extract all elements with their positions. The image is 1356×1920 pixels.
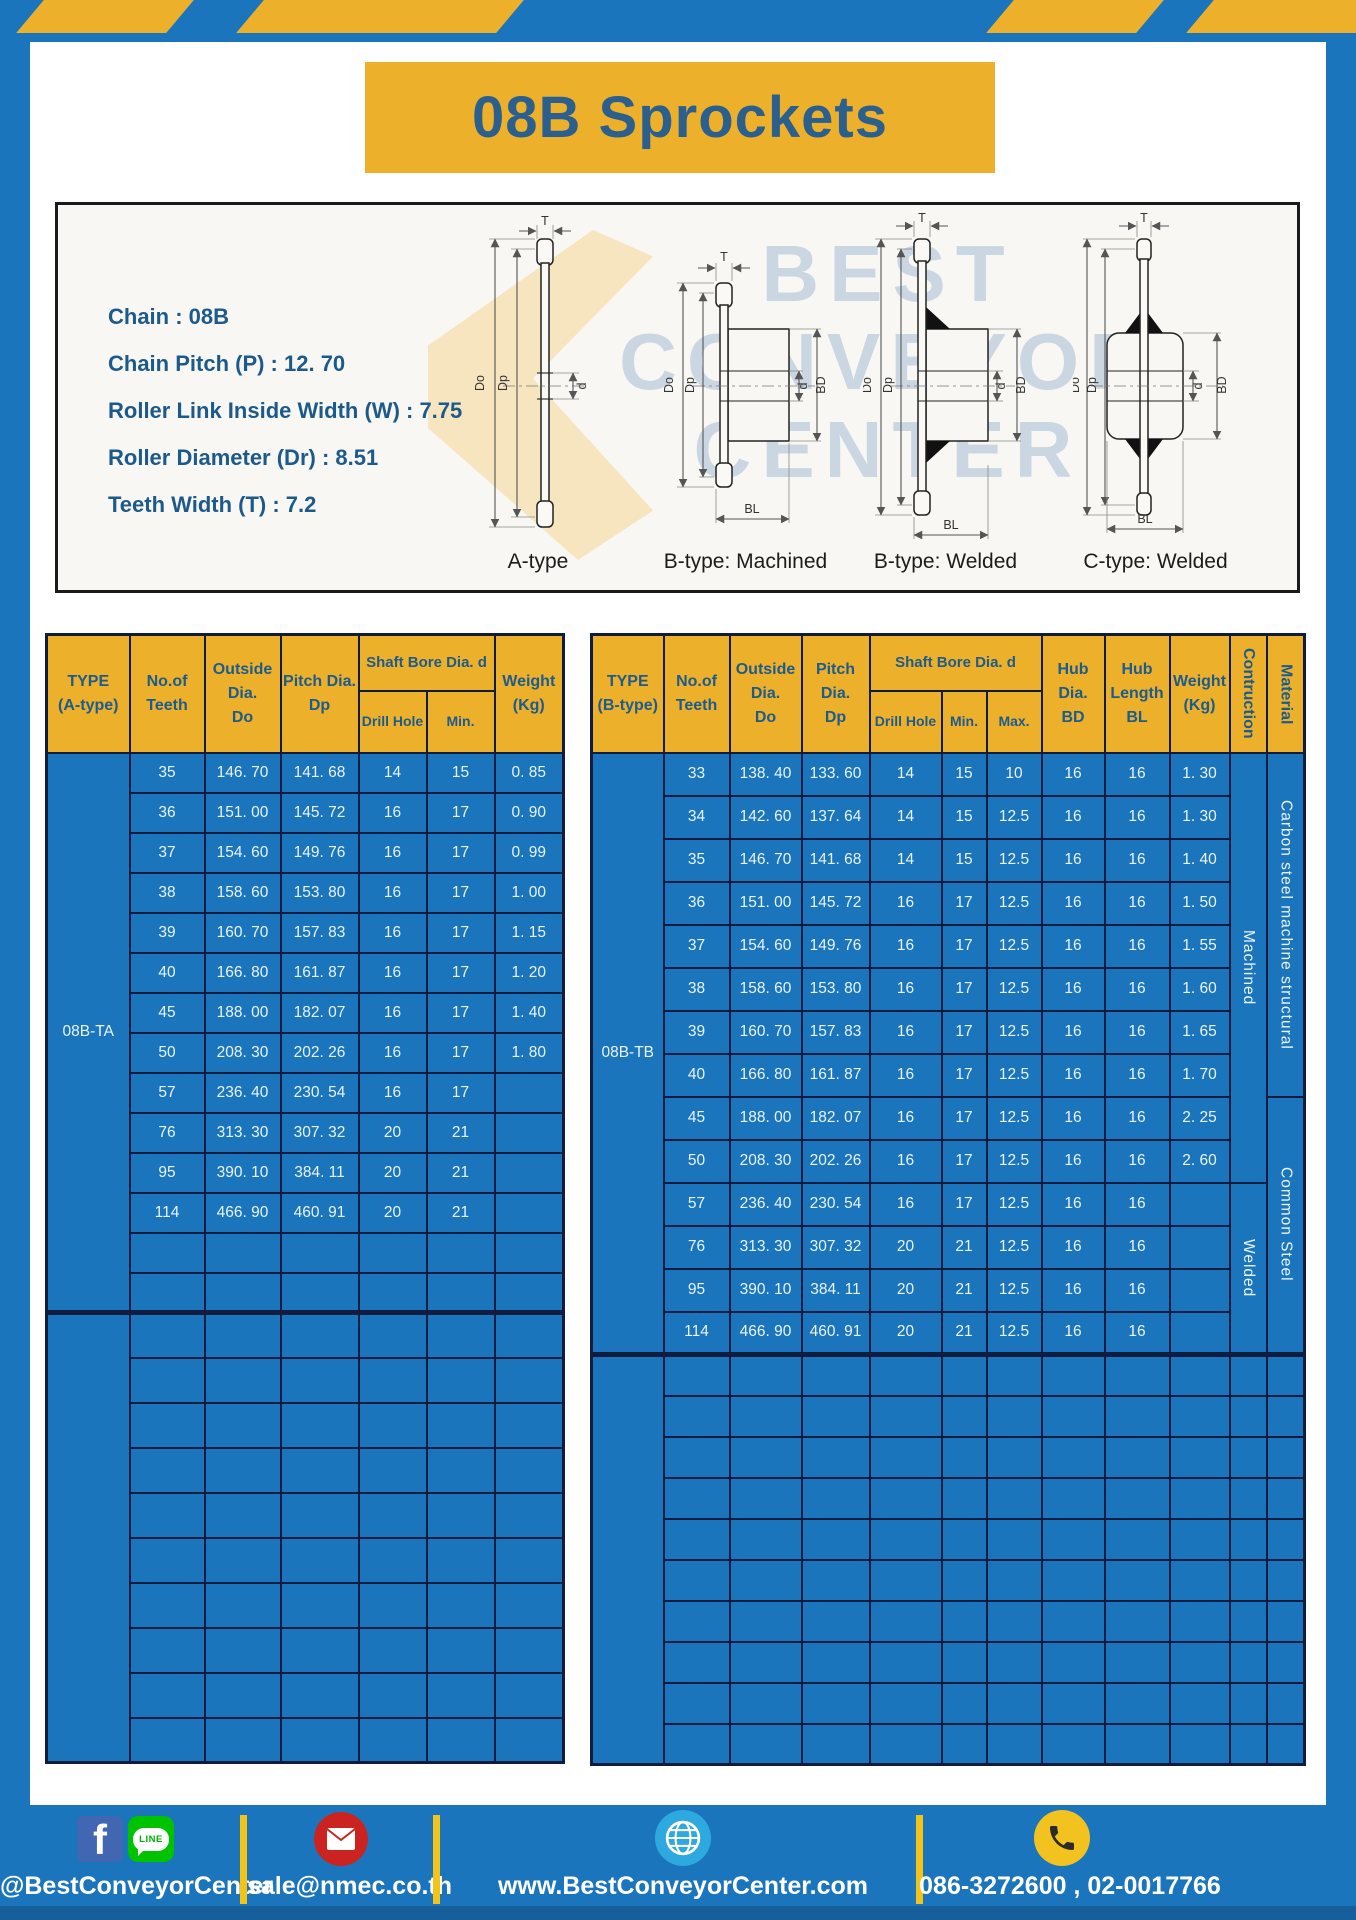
cell bbox=[1170, 1478, 1230, 1519]
cell: 16 bbox=[870, 1054, 942, 1097]
cell: 16 bbox=[1042, 925, 1105, 968]
cell: 307. 32 bbox=[802, 1226, 870, 1269]
cell bbox=[1105, 1396, 1170, 1437]
table-row bbox=[592, 1683, 1305, 1724]
cell bbox=[1230, 1601, 1267, 1642]
col-header-outside-dia: Outside Dia. Do bbox=[730, 635, 802, 753]
cell bbox=[987, 1519, 1042, 1560]
facebook-icon: f bbox=[77, 1816, 123, 1862]
cell: 202. 26 bbox=[281, 1033, 359, 1073]
cell bbox=[1042, 1355, 1105, 1396]
dim-label: Dp bbox=[496, 375, 510, 391]
cell: 145. 72 bbox=[281, 793, 359, 833]
table-a-empty-block bbox=[47, 1313, 564, 1763]
cell bbox=[130, 1718, 205, 1763]
cell: 57 bbox=[664, 1183, 730, 1226]
cell bbox=[802, 1601, 870, 1642]
cell bbox=[802, 1478, 870, 1519]
cell: 10 bbox=[987, 753, 1042, 796]
cell: 20 bbox=[359, 1113, 427, 1153]
cell: 20 bbox=[870, 1269, 942, 1312]
table-a-type: TYPE (A-type) No.of Teeth Outside Dia. D… bbox=[45, 633, 565, 1764]
table-row bbox=[592, 1519, 1305, 1560]
cell bbox=[802, 1355, 870, 1396]
cell: 16 bbox=[1105, 1312, 1170, 1355]
table-row: 45188. 00182. 07161712.516162. 25Common … bbox=[592, 1097, 1305, 1140]
cell bbox=[427, 1358, 495, 1403]
cell: 182. 07 bbox=[281, 993, 359, 1033]
table-row: 114466. 90460. 91202112.51616 bbox=[592, 1312, 1305, 1355]
cell: 146. 70 bbox=[205, 753, 281, 793]
chain-specs: Chain : 08B Chain Pitch (P) : 12. 70 Rol… bbox=[108, 293, 462, 528]
cell bbox=[427, 1493, 495, 1538]
cell: 95 bbox=[130, 1153, 205, 1193]
cell: 16 bbox=[870, 968, 942, 1011]
cell bbox=[281, 1403, 359, 1448]
cell: 16 bbox=[870, 925, 942, 968]
cell bbox=[942, 1478, 987, 1519]
dim-label: Do bbox=[863, 377, 874, 393]
cell: 17 bbox=[942, 925, 987, 968]
cell: 307. 32 bbox=[281, 1113, 359, 1153]
cell: 1. 20 bbox=[495, 953, 564, 993]
cell: 17 bbox=[942, 968, 987, 1011]
cell bbox=[1105, 1683, 1170, 1724]
a-type-diagram: T Do Dp d bbox=[473, 213, 603, 548]
cell bbox=[730, 1437, 802, 1478]
cell bbox=[1170, 1519, 1230, 1560]
cell bbox=[205, 1448, 281, 1493]
cell: 16 bbox=[359, 873, 427, 913]
col-header-teeth: No.of Teeth bbox=[664, 635, 730, 753]
cell bbox=[130, 1583, 205, 1628]
title-banner: 08B Sprockets bbox=[365, 62, 995, 173]
table-b-type-label: 08B-TB bbox=[592, 753, 664, 1355]
table-row: 38158. 60153. 80161712.516161. 60 bbox=[592, 968, 1305, 1011]
construction-label: Machined bbox=[1230, 753, 1267, 1183]
cell: 208. 30 bbox=[205, 1033, 281, 1073]
cell: 37 bbox=[664, 925, 730, 968]
cell bbox=[664, 1519, 730, 1560]
cell bbox=[205, 1718, 281, 1763]
cell bbox=[1042, 1560, 1105, 1601]
cell: 0. 90 bbox=[495, 793, 564, 833]
cell: 12.5 bbox=[987, 839, 1042, 882]
cell: 34 bbox=[664, 796, 730, 839]
cell: 1. 00 bbox=[495, 873, 564, 913]
cell bbox=[730, 1642, 802, 1683]
cell: 16 bbox=[1042, 753, 1105, 796]
cell: 160. 70 bbox=[730, 1011, 802, 1054]
line-icon: LINE bbox=[128, 1816, 174, 1862]
cell bbox=[130, 1448, 205, 1493]
cell: 17 bbox=[427, 793, 495, 833]
table-row: 36151. 00145. 72161712.516161. 50 bbox=[592, 882, 1305, 925]
table-row: 50208. 30202. 26161712.516162. 60 bbox=[592, 1140, 1305, 1183]
cell bbox=[664, 1683, 730, 1724]
cell: 17 bbox=[942, 1140, 987, 1183]
cell bbox=[1230, 1560, 1267, 1601]
cell: 12.5 bbox=[987, 796, 1042, 839]
cell bbox=[359, 1673, 427, 1718]
cell: 16 bbox=[1042, 796, 1105, 839]
table-row bbox=[592, 1355, 1305, 1396]
cell bbox=[1105, 1478, 1170, 1519]
col-header-hub-dia: Hub Dia. BD bbox=[1042, 635, 1105, 753]
cell: 21 bbox=[427, 1153, 495, 1193]
cell bbox=[205, 1538, 281, 1583]
dim-label: Do bbox=[1073, 377, 1082, 393]
cell: 17 bbox=[427, 993, 495, 1033]
cell: 313. 30 bbox=[205, 1113, 281, 1153]
cell bbox=[802, 1642, 870, 1683]
cell: 16 bbox=[1105, 1011, 1170, 1054]
cell bbox=[359, 1273, 427, 1313]
col-header-construction: Contruction bbox=[1230, 635, 1267, 753]
cell: 154. 60 bbox=[730, 925, 802, 968]
email-address: sale@nmec.co.th bbox=[247, 1872, 435, 1901]
cell bbox=[427, 1233, 495, 1273]
cell bbox=[359, 1628, 427, 1673]
col-header-type: TYPE (A-type) bbox=[47, 635, 130, 753]
cell: 149. 76 bbox=[281, 833, 359, 873]
cell bbox=[495, 1113, 564, 1153]
cell: 202. 26 bbox=[802, 1140, 870, 1183]
cell bbox=[427, 1313, 495, 1358]
cell: 20 bbox=[359, 1193, 427, 1233]
cell: 16 bbox=[1105, 968, 1170, 1011]
cell: 76 bbox=[664, 1226, 730, 1269]
cell bbox=[730, 1683, 802, 1724]
cell: 1. 15 bbox=[495, 913, 564, 953]
cell: 20 bbox=[870, 1312, 942, 1355]
cell bbox=[205, 1493, 281, 1538]
cell: 17 bbox=[942, 1183, 987, 1226]
table-row bbox=[592, 1601, 1305, 1642]
diagram-caption-a-type: A-type bbox=[463, 550, 613, 574]
col-header-pitch-dia: Pitch Dia. Dp bbox=[281, 635, 359, 753]
cell: 17 bbox=[942, 1054, 987, 1097]
cell bbox=[1230, 1519, 1267, 1560]
cell bbox=[664, 1724, 730, 1765]
page-title: 08B Sprockets bbox=[472, 84, 888, 151]
table-row bbox=[47, 1313, 564, 1358]
bottom-shadow-strip bbox=[0, 1906, 1356, 1920]
cell bbox=[130, 1493, 205, 1538]
cell: 14 bbox=[870, 753, 942, 796]
cell bbox=[1267, 1519, 1305, 1560]
cell: 16 bbox=[1042, 1097, 1105, 1140]
cell: 160. 70 bbox=[205, 913, 281, 953]
cell: 466. 90 bbox=[205, 1193, 281, 1233]
cell: 37 bbox=[130, 833, 205, 873]
cell bbox=[1267, 1560, 1305, 1601]
cell bbox=[1042, 1601, 1105, 1642]
dim-label: Dp bbox=[1085, 377, 1099, 393]
col-header-min: Min. bbox=[942, 691, 987, 753]
material-label: Common Steel bbox=[1267, 1097, 1305, 1355]
dim-label: d bbox=[575, 382, 589, 389]
cell bbox=[870, 1601, 942, 1642]
cell: 1. 60 bbox=[1170, 968, 1230, 1011]
cell: 21 bbox=[427, 1193, 495, 1233]
cell: 16 bbox=[1105, 1183, 1170, 1226]
cell bbox=[495, 1313, 564, 1358]
cell bbox=[1170, 1724, 1230, 1765]
cell: 151. 00 bbox=[730, 882, 802, 925]
c-type-welded-diagram: T Do Dp d BD BL bbox=[1073, 213, 1238, 548]
cell: 158. 60 bbox=[205, 873, 281, 913]
cell: 21 bbox=[427, 1113, 495, 1153]
cell: 16 bbox=[359, 1073, 427, 1113]
table-b-empty-block bbox=[592, 1355, 1305, 1765]
cell bbox=[1170, 1312, 1230, 1355]
cell: 466. 90 bbox=[730, 1312, 802, 1355]
cell: 35 bbox=[664, 839, 730, 882]
col-header-shaft-bore: Shaft Bore Dia. d bbox=[870, 635, 1042, 691]
cell: 12.5 bbox=[987, 1183, 1042, 1226]
table-b-type-spacer bbox=[592, 1355, 664, 1765]
cell: 35 bbox=[130, 753, 205, 793]
table-row bbox=[592, 1560, 1305, 1601]
cell bbox=[987, 1724, 1042, 1765]
table-a-header: TYPE (A-type) No.of Teeth Outside Dia. D… bbox=[47, 635, 564, 753]
construction-label: Welded bbox=[1230, 1183, 1267, 1355]
cell bbox=[1230, 1683, 1267, 1724]
cell bbox=[942, 1437, 987, 1478]
diagram-panel: BEST CONVEYOR CENTER Chain : 08B Chain P… bbox=[55, 202, 1300, 593]
cell: 166. 80 bbox=[730, 1054, 802, 1097]
diagram-caption-b-machined: B-type: Machined bbox=[643, 550, 848, 574]
cell: 166. 80 bbox=[205, 953, 281, 993]
cell bbox=[495, 1628, 564, 1673]
table-row: 95390. 10384. 11202112.51616 bbox=[592, 1269, 1305, 1312]
cell: 16 bbox=[359, 1033, 427, 1073]
cell: 20 bbox=[870, 1226, 942, 1269]
cell: 16 bbox=[1042, 1312, 1105, 1355]
cell: 16 bbox=[1105, 1097, 1170, 1140]
cell bbox=[870, 1478, 942, 1519]
table-b-header: TYPE (B-type) No.of Teeth Outside Dia. D… bbox=[592, 635, 1305, 753]
spec-line: Teeth Width (T) : 7.2 bbox=[108, 481, 462, 528]
cell: 384. 11 bbox=[802, 1269, 870, 1312]
cell bbox=[802, 1437, 870, 1478]
cell: 230. 54 bbox=[281, 1073, 359, 1113]
cell: 57 bbox=[130, 1073, 205, 1113]
cell bbox=[1267, 1478, 1305, 1519]
cell bbox=[1170, 1642, 1230, 1683]
cell bbox=[1042, 1683, 1105, 1724]
cell bbox=[987, 1560, 1042, 1601]
cell bbox=[1105, 1519, 1170, 1560]
cell bbox=[1230, 1355, 1267, 1396]
cell bbox=[281, 1628, 359, 1673]
cell: 141. 68 bbox=[802, 839, 870, 882]
cell: 21 bbox=[942, 1269, 987, 1312]
cell bbox=[942, 1642, 987, 1683]
cell: 1. 65 bbox=[1170, 1011, 1230, 1054]
website-url: www.BestConveyorCenter.com bbox=[437, 1872, 929, 1901]
dim-label: Dp bbox=[683, 377, 697, 393]
cell bbox=[1267, 1642, 1305, 1683]
cell: 17 bbox=[427, 1033, 495, 1073]
cell: 12.5 bbox=[987, 1011, 1042, 1054]
cell bbox=[870, 1396, 942, 1437]
cell bbox=[664, 1355, 730, 1396]
cell: 16 bbox=[1105, 882, 1170, 925]
cell: 12.5 bbox=[987, 1097, 1042, 1140]
cell bbox=[1170, 1396, 1230, 1437]
dim-label: BD bbox=[1014, 376, 1028, 393]
cell: 16 bbox=[1042, 968, 1105, 1011]
cell: 14 bbox=[870, 839, 942, 882]
dim-label: d bbox=[1191, 382, 1205, 389]
cell bbox=[281, 1673, 359, 1718]
b-type-welded-diagram: T Do Dp d BD BL bbox=[863, 213, 1028, 548]
cell bbox=[1170, 1269, 1230, 1312]
cell: 12.5 bbox=[987, 1269, 1042, 1312]
cell: 45 bbox=[130, 993, 205, 1033]
cell bbox=[281, 1273, 359, 1313]
cell: 1. 80 bbox=[495, 1033, 564, 1073]
cell bbox=[1170, 1683, 1230, 1724]
hazard-stripe bbox=[16, 0, 194, 33]
table-b-type: TYPE (B-type) No.of Teeth Outside Dia. D… bbox=[590, 633, 1306, 1766]
cell: 114 bbox=[130, 1193, 205, 1233]
table-row: 40166. 80161. 87161712.516161. 70 bbox=[592, 1054, 1305, 1097]
cell: 39 bbox=[664, 1011, 730, 1054]
cell bbox=[495, 1583, 564, 1628]
cell bbox=[130, 1538, 205, 1583]
cell: 313. 30 bbox=[730, 1226, 802, 1269]
cell bbox=[495, 1193, 564, 1233]
cell bbox=[870, 1437, 942, 1478]
cell: 16 bbox=[1042, 839, 1105, 882]
table-b-data-block: 08B-TB33138. 40133. 6014151016161. 30Mac… bbox=[592, 753, 1305, 1355]
col-header-outside-dia: Outside Dia. Do bbox=[205, 635, 281, 753]
cell bbox=[205, 1628, 281, 1673]
cell bbox=[942, 1396, 987, 1437]
cell: 36 bbox=[664, 882, 730, 925]
hazard-stripe bbox=[236, 0, 524, 33]
cell: 16 bbox=[1042, 1140, 1105, 1183]
footer-divider bbox=[240, 1815, 247, 1904]
phone-icon bbox=[1034, 1810, 1090, 1866]
cell bbox=[942, 1601, 987, 1642]
cell bbox=[495, 1448, 564, 1493]
cell: 14 bbox=[870, 796, 942, 839]
cell: 50 bbox=[664, 1140, 730, 1183]
cell: 390. 10 bbox=[205, 1153, 281, 1193]
cell: 1. 55 bbox=[1170, 925, 1230, 968]
cell bbox=[359, 1403, 427, 1448]
cell bbox=[870, 1355, 942, 1396]
social-handle: @BestConveyorCenter bbox=[0, 1872, 246, 1901]
cell: 45 bbox=[664, 1097, 730, 1140]
cell: 16 bbox=[1042, 1054, 1105, 1097]
line-bubble-glyph: LINE bbox=[133, 1828, 169, 1851]
cell: 14 bbox=[359, 753, 427, 793]
cell: 16 bbox=[359, 913, 427, 953]
cell bbox=[870, 1642, 942, 1683]
diagram-caption-c-welded: C-type: Welded bbox=[1053, 550, 1258, 574]
cell bbox=[987, 1478, 1042, 1519]
cell: 16 bbox=[1042, 1183, 1105, 1226]
cell bbox=[1042, 1724, 1105, 1765]
cell bbox=[802, 1396, 870, 1437]
dim-label: T bbox=[541, 214, 549, 228]
cell: 16 bbox=[359, 953, 427, 993]
cell bbox=[281, 1233, 359, 1273]
table-a-type-label: 08B-TA bbox=[47, 753, 130, 1313]
cell: 17 bbox=[427, 953, 495, 993]
cell: 114 bbox=[664, 1312, 730, 1355]
diagram-caption-b-welded: B-type: Welded bbox=[843, 550, 1048, 574]
cell bbox=[359, 1313, 427, 1358]
cell: 158. 60 bbox=[730, 968, 802, 1011]
cell bbox=[1267, 1601, 1305, 1642]
col-header-pitch-dia: Pitch Dia. Dp bbox=[802, 635, 870, 753]
cell bbox=[1105, 1724, 1170, 1765]
cell: 1. 40 bbox=[495, 993, 564, 1033]
hazard-stripe bbox=[1186, 0, 1356, 33]
cell: 17 bbox=[942, 882, 987, 925]
cell bbox=[730, 1396, 802, 1437]
cell bbox=[987, 1683, 1042, 1724]
cell bbox=[427, 1273, 495, 1313]
cell bbox=[1105, 1355, 1170, 1396]
cell: 12.5 bbox=[987, 1140, 1042, 1183]
cell: 188. 00 bbox=[730, 1097, 802, 1140]
cell bbox=[1230, 1642, 1267, 1683]
table-row bbox=[592, 1437, 1305, 1478]
cell bbox=[730, 1478, 802, 1519]
table-row: 76313. 30307. 32202112.51616 bbox=[592, 1226, 1305, 1269]
cell: 16 bbox=[1105, 1226, 1170, 1269]
table-row: 35146. 70141. 68141512.516161. 40 bbox=[592, 839, 1305, 882]
cell: 230. 54 bbox=[802, 1183, 870, 1226]
cell bbox=[870, 1519, 942, 1560]
table-a-data-block: 08B-TA35146. 70141. 6814150. 8536151. 00… bbox=[47, 753, 564, 1313]
cell bbox=[495, 1273, 564, 1313]
cell: 151. 00 bbox=[205, 793, 281, 833]
dim-label: T bbox=[918, 213, 926, 225]
cell: 16 bbox=[1105, 1054, 1170, 1097]
cell bbox=[495, 1233, 564, 1273]
col-header-min: Min. bbox=[427, 691, 495, 753]
spec-line: Roller Link Inside Width (W) : 7.75 bbox=[108, 387, 462, 434]
cell bbox=[1170, 1355, 1230, 1396]
cell bbox=[427, 1673, 495, 1718]
cell bbox=[664, 1642, 730, 1683]
dim-label: d bbox=[994, 382, 1008, 389]
cell: 16 bbox=[1105, 1140, 1170, 1183]
cell: 236. 40 bbox=[205, 1073, 281, 1113]
cell: 2. 25 bbox=[1170, 1097, 1230, 1140]
dim-label: d bbox=[796, 382, 810, 389]
b-type-machined-diagram: T Do Dp d BD BL bbox=[663, 213, 828, 548]
cell: 40 bbox=[130, 953, 205, 993]
cell: 17 bbox=[427, 873, 495, 913]
cell bbox=[730, 1355, 802, 1396]
cell bbox=[870, 1683, 942, 1724]
cell bbox=[730, 1519, 802, 1560]
cell bbox=[664, 1601, 730, 1642]
spec-line: Chain : 08B bbox=[108, 293, 462, 340]
cell: 390. 10 bbox=[730, 1269, 802, 1312]
cell bbox=[281, 1718, 359, 1763]
cell bbox=[870, 1560, 942, 1601]
